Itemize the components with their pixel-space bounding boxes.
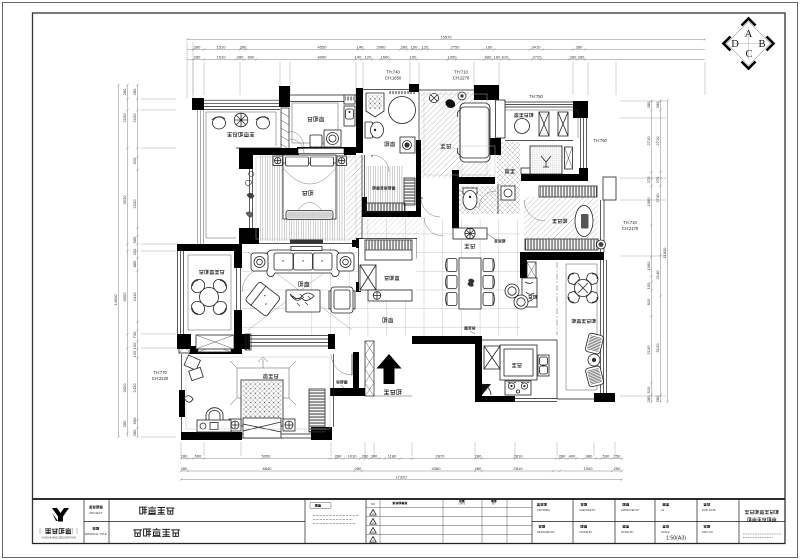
svg-text:3530: 3530 <box>122 195 127 205</box>
svg-text:1180: 1180 <box>388 453 397 458</box>
svg-text:2710: 2710 <box>655 136 660 146</box>
svg-text:150: 150 <box>411 44 418 49</box>
svg-text:280: 280 <box>355 466 362 471</box>
svg-text:14000: 14000 <box>113 294 118 306</box>
svg-text:280: 280 <box>559 453 566 458</box>
svg-text:280: 280 <box>237 54 244 59</box>
svg-text:2710: 2710 <box>646 136 651 146</box>
svg-text:1060: 1060 <box>646 261 651 271</box>
svg-text:510: 510 <box>646 386 651 393</box>
svg-text:610: 610 <box>502 54 509 59</box>
svg-text:DRAWING TITLE: DRAWING TITLE <box>85 532 107 536</box>
svg-text:CH:2220: CH:2220 <box>152 376 169 381</box>
svg-text:15570: 15570 <box>440 34 452 39</box>
svg-text:880: 880 <box>132 260 137 267</box>
svg-text:3020: 3020 <box>122 383 127 393</box>
svg-text:2750: 2750 <box>451 44 461 49</box>
svg-text:280: 280 <box>132 88 137 95</box>
svg-text:4380: 4380 <box>432 466 442 471</box>
svg-text:2130: 2130 <box>646 345 651 355</box>
svg-text:APPROVED BY: APPROVED BY <box>621 508 640 512</box>
svg-text:TH:710: TH:710 <box>454 70 468 75</box>
svg-text:3120: 3120 <box>655 343 660 353</box>
svg-text:2150: 2150 <box>132 113 137 123</box>
svg-text:280: 280 <box>362 453 369 458</box>
svg-text:280: 280 <box>401 44 408 49</box>
svg-text:17320: 17320 <box>395 474 407 479</box>
svg-text:280: 280 <box>576 44 583 49</box>
svg-text:600: 600 <box>132 417 137 424</box>
svg-text:1900: 1900 <box>584 466 594 471</box>
svg-text:250: 250 <box>614 453 621 458</box>
svg-text:TH:710: TH:710 <box>623 220 637 225</box>
svg-text:TH:750: TH:750 <box>593 138 607 143</box>
svg-text:2720: 2720 <box>533 54 543 59</box>
svg-text:380: 380 <box>371 453 378 458</box>
svg-text:120: 120 <box>365 54 372 59</box>
svg-text:280: 280 <box>194 44 201 49</box>
svg-text:PROJECT: PROJECT <box>89 511 102 515</box>
svg-text:1510: 1510 <box>217 54 227 59</box>
svg-text:5050: 5050 <box>262 453 272 458</box>
svg-text:YUNCHUANG DECORATION: YUNCHUANG DECORATION <box>41 536 76 540</box>
svg-text:280: 280 <box>570 54 577 59</box>
svg-text:TH:770: TH:770 <box>153 370 167 375</box>
svg-text:280: 280 <box>335 453 342 458</box>
svg-text:A: A <box>745 29 753 40</box>
svg-text:250: 250 <box>614 466 621 471</box>
svg-text:2330: 2330 <box>132 199 137 209</box>
svg-text:730: 730 <box>132 331 137 338</box>
svg-text:1660: 1660 <box>381 54 391 59</box>
svg-text:280: 280 <box>194 54 201 59</box>
svg-text:CH:2270: CH:2270 <box>453 76 470 81</box>
svg-text:980: 980 <box>586 453 593 458</box>
svg-text:680: 680 <box>485 54 492 59</box>
svg-text:B: B <box>758 39 765 50</box>
svg-text:DOING BY: DOING BY <box>621 530 634 534</box>
svg-text:160: 160 <box>494 54 501 59</box>
svg-text:400: 400 <box>569 453 576 458</box>
svg-text:DWG NO: DWG NO <box>702 530 713 534</box>
svg-text:CH:2170: CH:2170 <box>622 226 639 231</box>
svg-text:DGB. DATE: DGB. DATE <box>702 508 716 512</box>
svg-text:1510: 1510 <box>217 44 227 49</box>
svg-text:270: 270 <box>646 176 651 183</box>
svg-text:4550: 4550 <box>318 44 328 49</box>
svg-text:CH:1650: CH:1650 <box>385 76 402 81</box>
svg-text:280: 280 <box>578 54 585 59</box>
svg-text:TH:750: TH:750 <box>529 94 543 99</box>
svg-text:2810: 2810 <box>514 466 524 471</box>
svg-text:1010: 1010 <box>348 453 358 458</box>
svg-text:D: D <box>731 39 739 50</box>
svg-text:1:50(A3): 1:50(A3) <box>666 536 686 542</box>
svg-text:280: 280 <box>132 429 137 436</box>
svg-text:2740: 2740 <box>655 193 660 203</box>
svg-text:6050: 6050 <box>122 292 127 302</box>
svg-text:2430: 2430 <box>132 383 137 393</box>
svg-text:6840: 6840 <box>263 466 273 471</box>
svg-text:2870: 2870 <box>436 453 446 458</box>
svg-text:810: 810 <box>646 298 651 305</box>
svg-text:P.BYRNES: P.BYRNES <box>537 508 550 512</box>
svg-text:3410: 3410 <box>532 44 542 49</box>
svg-text:2410: 2410 <box>132 292 137 302</box>
svg-text:CZONE BY: CZONE BY <box>579 530 593 534</box>
svg-text:500: 500 <box>195 453 202 458</box>
svg-text:SCALE: SCALE <box>661 530 670 534</box>
svg-text:11800: 11800 <box>662 247 667 259</box>
svg-text:140: 140 <box>357 44 364 49</box>
svg-text:2140: 2140 <box>655 270 660 280</box>
svg-text:150: 150 <box>132 342 137 349</box>
svg-text:280: 280 <box>122 420 127 427</box>
svg-text:TH:740: TH:740 <box>386 70 400 75</box>
svg-text:C: C <box>745 49 752 60</box>
svg-text:2150: 2150 <box>122 113 127 123</box>
svg-text:250: 250 <box>132 248 137 255</box>
svg-text:270: 270 <box>655 176 660 183</box>
svg-text:690: 690 <box>248 54 255 59</box>
svg-text:DESIGNED BY: DESIGNED BY <box>537 530 555 534</box>
svg-text:530: 530 <box>603 453 610 458</box>
svg-text:CHECKED BY: CHECKED BY <box>579 508 596 512</box>
svg-text:280: 280 <box>122 88 127 95</box>
svg-text:A3: A3 <box>661 508 665 512</box>
svg-text:120: 120 <box>132 350 137 357</box>
svg-text:1080: 1080 <box>646 197 651 207</box>
svg-text:160: 160 <box>486 44 493 49</box>
svg-text:2060: 2060 <box>377 44 387 49</box>
